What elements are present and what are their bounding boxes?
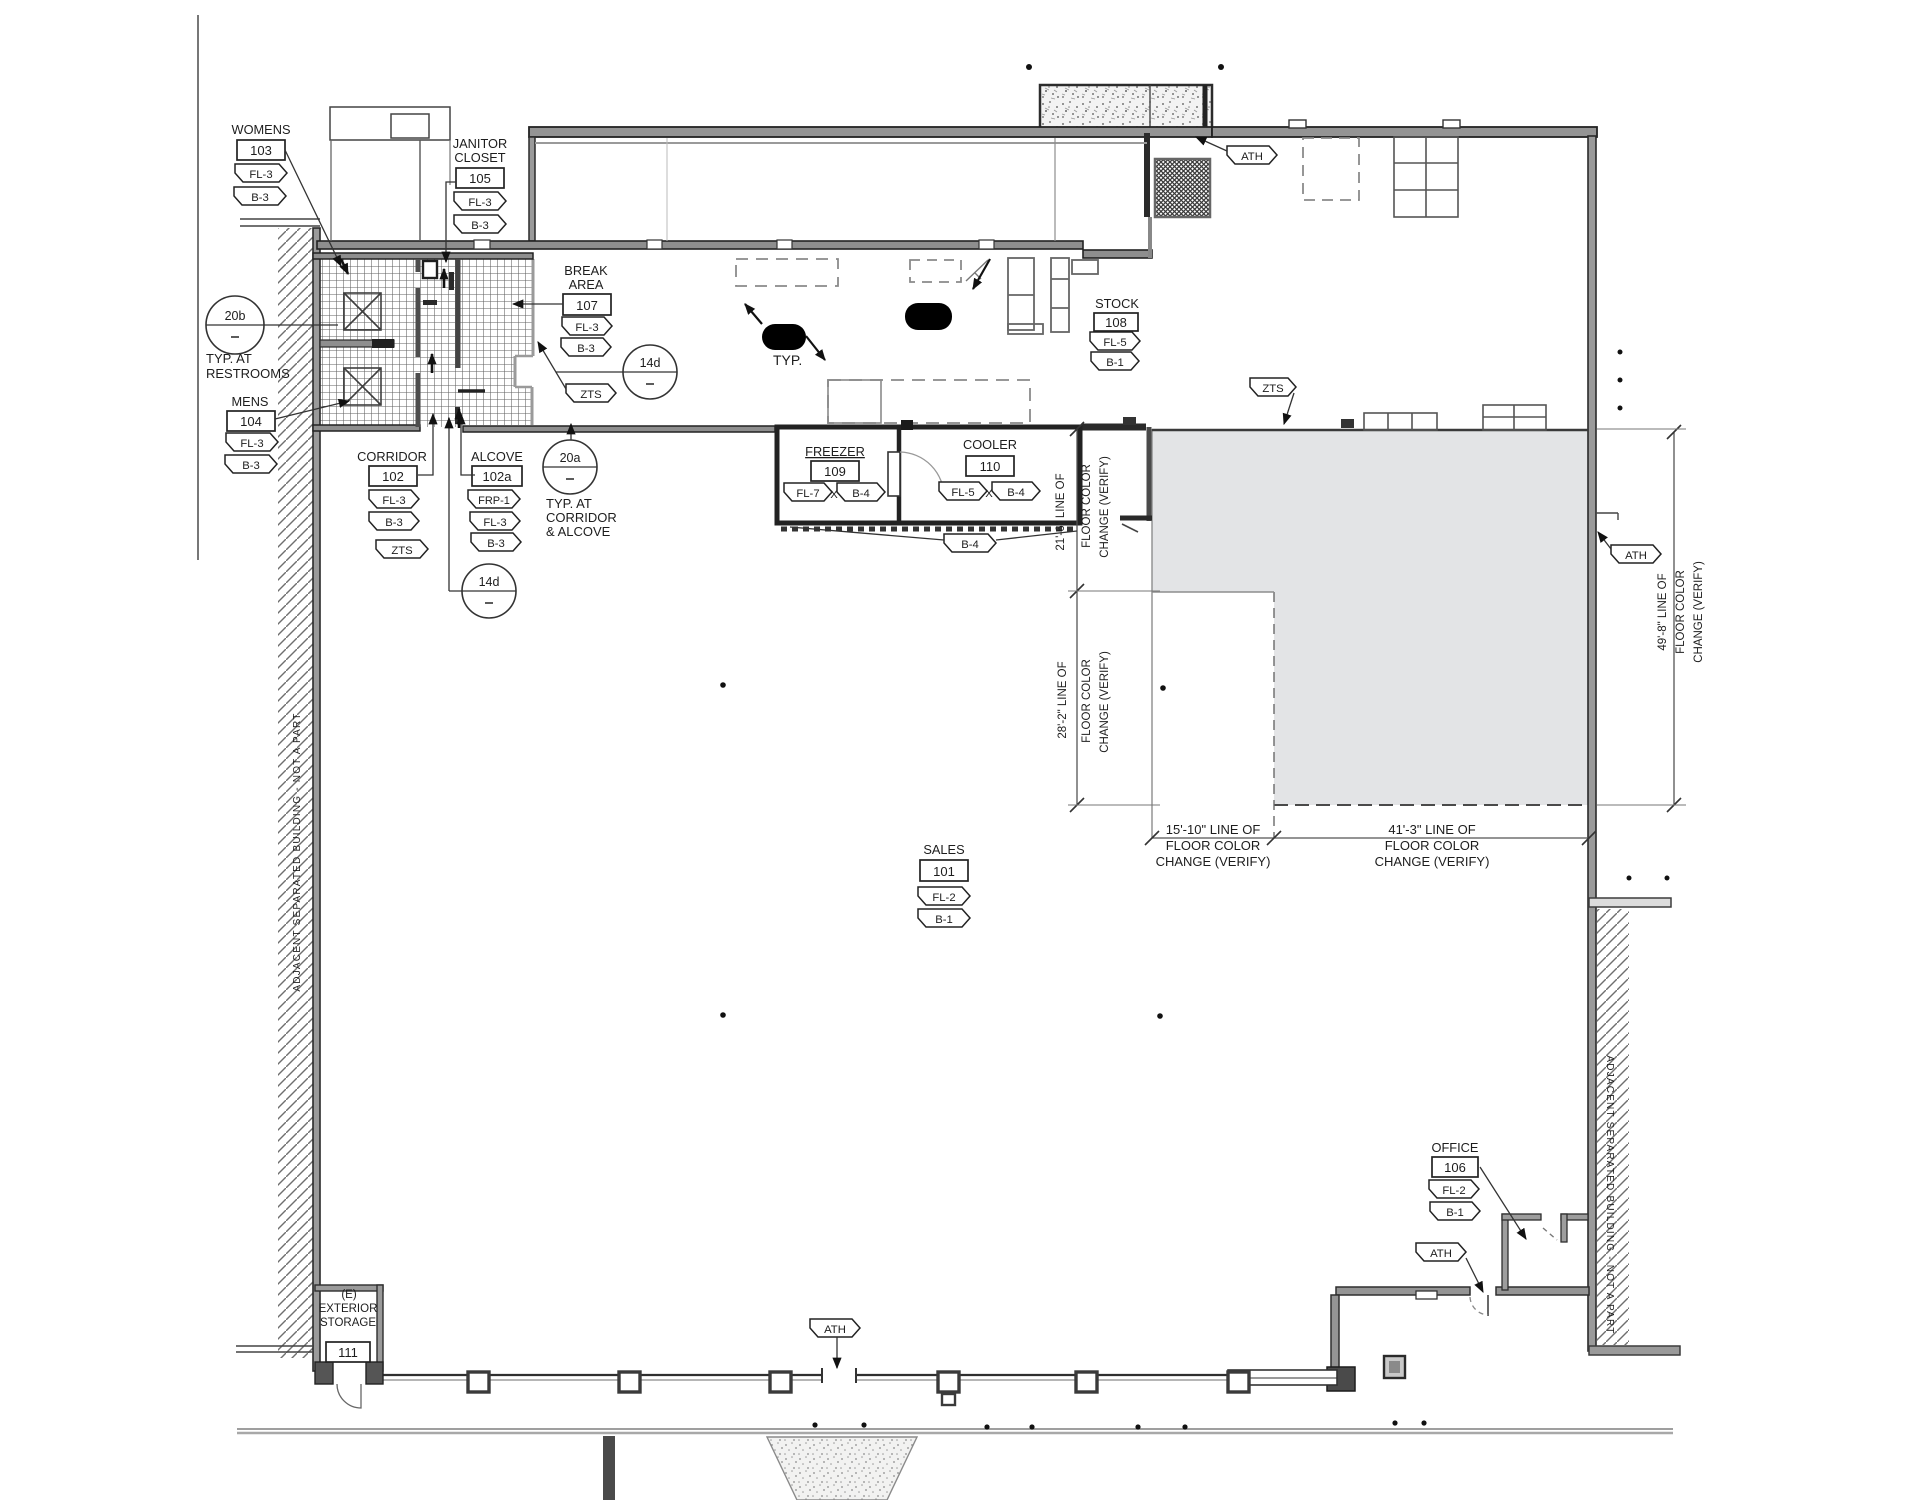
svg-text:OFFICE: OFFICE <box>1432 1140 1479 1155</box>
svg-text:B-1: B-1 <box>935 914 953 926</box>
svg-text:ZTS: ZTS <box>1262 383 1284 395</box>
svg-text:107: 107 <box>576 298 598 313</box>
svg-text:ATH: ATH <box>1625 550 1647 562</box>
svg-text:FL-5: FL-5 <box>951 487 974 499</box>
svg-text:14d: 14d <box>640 356 661 370</box>
svg-text:B-4: B-4 <box>1007 487 1025 499</box>
svg-text:101: 101 <box>933 864 955 879</box>
svg-text:B-3: B-3 <box>471 220 489 232</box>
svg-text:FL-3: FL-3 <box>382 495 405 507</box>
svg-text:STOCK: STOCK <box>1095 296 1139 311</box>
svg-text:ADJACENT SEPARATED BUILDING -: ADJACENT SEPARATED BUILDING - NOT A PART <box>1604 1055 1615 1334</box>
svg-text:28'-2" LINE OF: 28'-2" LINE OF <box>1057 661 1069 738</box>
svg-text:FLOOR COLOR: FLOOR COLOR <box>1675 570 1687 654</box>
svg-text:106: 106 <box>1444 1160 1466 1175</box>
svg-text:B-3: B-3 <box>251 192 269 204</box>
svg-text:AREA: AREA <box>569 277 604 292</box>
svg-text:B-4: B-4 <box>852 488 870 500</box>
svg-text:(E): (E) <box>341 1289 357 1301</box>
svg-text:CHANGE (VERIFY): CHANGE (VERIFY) <box>1375 854 1490 869</box>
svg-text:109: 109 <box>824 464 846 479</box>
svg-text:FL-7: FL-7 <box>796 488 819 500</box>
svg-text:CORRIDOR: CORRIDOR <box>546 510 617 525</box>
svg-text:FL-2: FL-2 <box>932 892 955 904</box>
svg-text:ATH: ATH <box>824 1324 846 1336</box>
svg-text:CHANGE (VERIFY): CHANGE (VERIFY) <box>1156 854 1271 869</box>
svg-text:B-1: B-1 <box>1106 357 1124 369</box>
svg-text:FL-3: FL-3 <box>483 517 506 529</box>
svg-text:STORAGE: STORAGE <box>320 1317 376 1329</box>
svg-text:WOMENS: WOMENS <box>231 122 290 137</box>
svg-text:102a: 102a <box>483 469 513 484</box>
svg-text:TYP. AT: TYP. AT <box>206 351 252 366</box>
svg-text:CLOSET: CLOSET <box>454 150 505 165</box>
svg-text:FLOOR COLOR: FLOOR COLOR <box>1166 838 1261 853</box>
svg-text:108: 108 <box>1105 315 1127 330</box>
svg-text:ADJACENT SEPARATED BUILDING -: ADJACENT SEPARATED BUILDING - NOT A PART <box>292 712 303 991</box>
svg-text:FLOOR COLOR: FLOOR COLOR <box>1385 838 1480 853</box>
svg-text:B-3: B-3 <box>242 460 260 472</box>
svg-text:B-1: B-1 <box>1446 1207 1464 1219</box>
svg-text:B-3: B-3 <box>577 343 595 355</box>
svg-text:15'-10" LINE OF: 15'-10" LINE OF <box>1166 822 1261 837</box>
svg-text:ATH: ATH <box>1241 151 1263 163</box>
svg-text:20a: 20a <box>560 451 581 465</box>
svg-text:B-3: B-3 <box>487 538 505 550</box>
svg-text:BREAK: BREAK <box>564 263 608 278</box>
svg-text:20b: 20b <box>225 309 246 323</box>
svg-text:ZTS: ZTS <box>391 545 413 557</box>
svg-text:49'-8" LINE OF: 49'-8" LINE OF <box>1657 573 1669 650</box>
svg-text:MENS: MENS <box>232 394 269 409</box>
svg-text:FLOOR COLOR: FLOOR COLOR <box>1081 659 1093 743</box>
svg-text:CHANGE (VERIFY): CHANGE (VERIFY) <box>1099 456 1111 558</box>
svg-text:41'-3" LINE OF: 41'-3" LINE OF <box>1388 822 1475 837</box>
svg-text:FRP-1: FRP-1 <box>478 495 510 507</box>
svg-text:RESTROOMS: RESTROOMS <box>206 366 290 381</box>
svg-text:110: 110 <box>980 459 1001 474</box>
svg-text:FL-2: FL-2 <box>1442 1185 1465 1197</box>
svg-text:103: 103 <box>250 143 272 158</box>
svg-text:ZTS: ZTS <box>580 389 602 401</box>
svg-text:111: 111 <box>338 1345 358 1360</box>
svg-text:EXTERIOR: EXTERIOR <box>319 1303 378 1315</box>
svg-text:& ALCOVE: & ALCOVE <box>546 524 611 539</box>
svg-text:CHANGE (VERIFY): CHANGE (VERIFY) <box>1693 561 1705 663</box>
svg-text:ALCOVE: ALCOVE <box>471 449 523 464</box>
svg-text:COOLER: COOLER <box>963 437 1017 452</box>
svg-text:FREEZER: FREEZER <box>805 444 865 459</box>
svg-text:105: 105 <box>469 171 491 186</box>
svg-text:CHANGE (VERIFY): CHANGE (VERIFY) <box>1099 651 1111 753</box>
svg-text:TYP.: TYP. <box>773 352 802 368</box>
svg-text:B-3: B-3 <box>385 517 403 529</box>
svg-text:102: 102 <box>382 469 404 484</box>
svg-text:B-4: B-4 <box>961 539 979 551</box>
svg-text:FL-3: FL-3 <box>575 322 598 334</box>
svg-text:104: 104 <box>240 414 262 429</box>
svg-text:FL-3: FL-3 <box>240 438 263 450</box>
svg-text:21'-6" LINE OF: 21'-6" LINE OF <box>1055 473 1067 550</box>
svg-text:ATH: ATH <box>1430 1248 1452 1260</box>
svg-text:FL-3: FL-3 <box>249 169 272 181</box>
svg-text:SALES: SALES <box>923 842 964 857</box>
svg-text:14d: 14d <box>479 575 500 589</box>
svg-text:JANITOR: JANITOR <box>453 136 508 151</box>
svg-text:FLOOR COLOR: FLOOR COLOR <box>1081 464 1093 548</box>
svg-text:TYP. AT: TYP. AT <box>546 496 592 511</box>
svg-text:FL-3: FL-3 <box>468 197 491 209</box>
svg-text:FL-5: FL-5 <box>1103 337 1126 349</box>
svg-text:CORRIDOR: CORRIDOR <box>357 449 427 464</box>
